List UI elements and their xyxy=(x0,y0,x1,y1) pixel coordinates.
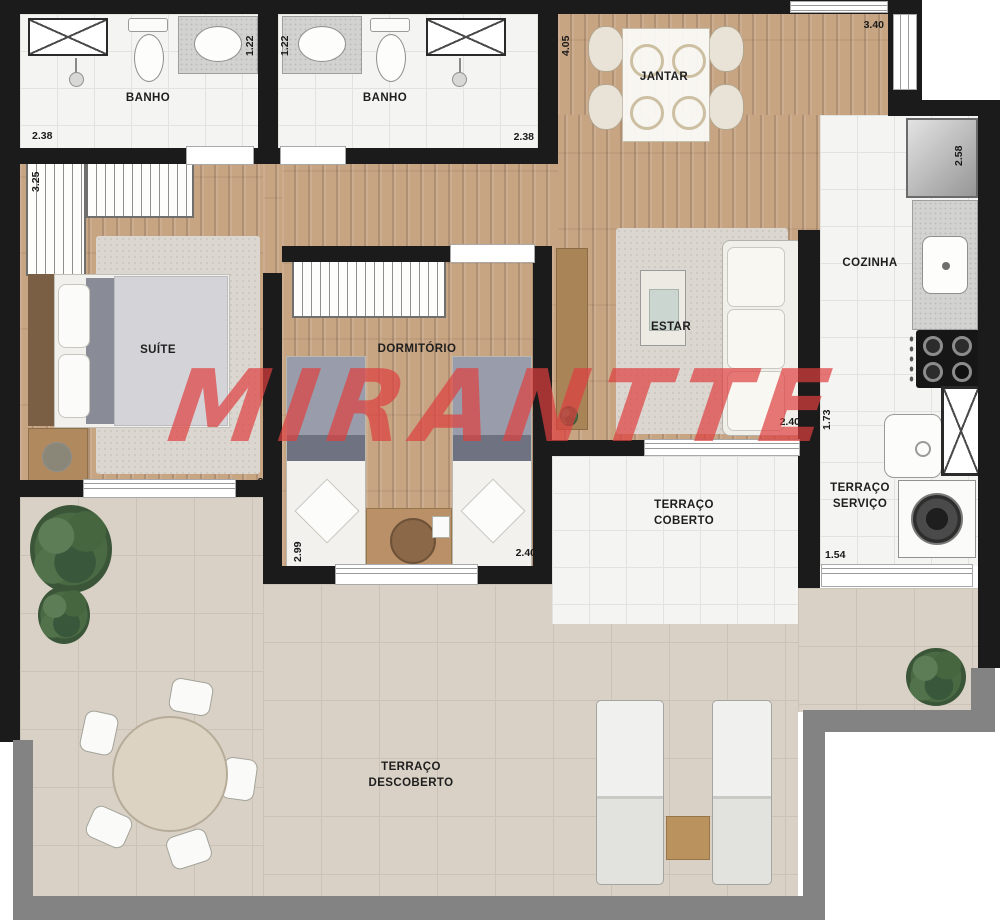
room-label-estar: ESTAR xyxy=(651,320,691,336)
bed-blanket-band xyxy=(287,435,365,461)
room-label-dormitorio: DORMITÓRIO xyxy=(378,342,457,358)
outside-bottom-right xyxy=(825,730,1000,924)
door-dormitorio xyxy=(450,244,535,263)
stove-cooktop-icon xyxy=(916,330,980,388)
sofa-cushion xyxy=(727,371,785,431)
terrace-chair xyxy=(167,677,214,718)
dim-dormitorio-depth: 2.99 xyxy=(292,542,304,562)
terraco-coberto-line1: TERRAÇO xyxy=(654,499,714,511)
wall-estar-servico xyxy=(798,230,820,588)
toilet-tank-icon xyxy=(128,18,168,32)
wall-dormitorio-top xyxy=(282,246,452,262)
wall-estar-bottom xyxy=(552,440,644,456)
room-label-terraco-servico: TERRAÇO SERVIÇO xyxy=(830,481,890,512)
dim-jantar-width: 3.40 xyxy=(864,19,884,31)
dim-cozinha-depth: 2.58 xyxy=(953,146,965,166)
dim-banho2-width: 2.38 xyxy=(514,131,534,143)
wall-left xyxy=(0,0,20,742)
wall-banho-divider xyxy=(258,0,278,150)
door-servico-terrace xyxy=(821,564,973,587)
bed-blanket xyxy=(453,357,531,435)
window-jantar-top xyxy=(790,1,888,13)
terraco-servico-line1: TERRAÇO xyxy=(830,482,890,494)
wall-suite-dormitorio xyxy=(263,273,282,584)
tv-console xyxy=(556,248,588,430)
room-label-banho-1: BANHO xyxy=(126,91,170,107)
small-plant-icon xyxy=(560,406,578,426)
dim-banho1-width: 2.38 xyxy=(32,130,52,142)
burner-icon xyxy=(923,362,943,382)
bench-lamp-icon xyxy=(42,442,72,472)
sofa-cushion xyxy=(727,309,785,369)
room-label-terraco-coberto: TERRAÇO COBERTO xyxy=(654,498,714,529)
suite-closet-top xyxy=(86,158,194,218)
potted-plant-icon xyxy=(906,648,966,706)
large-plant-icon xyxy=(30,505,112,593)
pillow xyxy=(58,354,90,418)
laundry-tank-icon xyxy=(884,414,942,478)
dim-servico-depth: 1.73 xyxy=(821,410,833,430)
bed-throw xyxy=(86,278,114,424)
window-dormitorio-terrace xyxy=(335,564,478,585)
dining-chair xyxy=(708,84,744,130)
dining-chair xyxy=(708,26,744,72)
toilet-tank-icon xyxy=(370,18,410,32)
pillow xyxy=(58,284,90,348)
wall-right xyxy=(978,100,1000,670)
dim-dormitorio-width: 2.40 xyxy=(516,547,536,559)
room-label-cozinha: COZINHA xyxy=(842,256,897,272)
round-plant-icon xyxy=(38,586,90,644)
wall-top xyxy=(0,0,892,14)
terraco-descoberto-line1: TERRAÇO xyxy=(381,761,441,773)
toilet-bowl-icon xyxy=(376,34,406,82)
outside-left-strip xyxy=(0,742,13,924)
stove-knobs-icon xyxy=(908,334,915,384)
room-label-terraco-descoberto: TERRAÇO DESCOBERTO xyxy=(369,760,454,791)
toilet-bowl-icon xyxy=(134,34,164,82)
sofa xyxy=(722,240,804,436)
washer-door-icon xyxy=(911,493,963,545)
sink-basin-icon xyxy=(298,26,346,62)
dining-chair xyxy=(588,26,624,72)
dim-suite-depth: 3.25 xyxy=(30,172,42,192)
burner-icon xyxy=(923,336,943,356)
kitchen-sink-icon xyxy=(922,236,968,294)
duct-shaft-icon xyxy=(941,386,981,476)
tank-drain-icon xyxy=(915,441,931,457)
sun-lounger xyxy=(596,700,664,885)
dim-estar-width: 2.40 xyxy=(780,416,800,428)
floor-plan: BANHO BANHO JANTAR COZINHA SUÍTE DORMITÓ… xyxy=(0,0,1000,924)
round-stool-icon xyxy=(390,518,436,564)
door-banho-2 xyxy=(280,146,346,165)
bed-blanket-band xyxy=(453,435,531,461)
refrigerator xyxy=(906,118,978,198)
window-jantar-right xyxy=(893,14,917,90)
burner-icon xyxy=(952,336,972,356)
door-suite-terrace xyxy=(83,479,236,498)
shower-drain-icon xyxy=(452,72,467,87)
room-label-banho-2: BANHO xyxy=(363,91,407,107)
chair-back-icon xyxy=(630,96,664,130)
terraco-descoberto-line2: DESCOBERTO xyxy=(369,777,454,789)
shower-drain-icon xyxy=(69,72,84,87)
terraco-servico-line2: SERVIÇO xyxy=(833,498,887,510)
floor-hall xyxy=(282,163,558,246)
parapet-step-horizontal xyxy=(803,710,993,732)
door-banho-1 xyxy=(186,146,254,165)
room-label-suite: SUÍTE xyxy=(140,343,176,359)
shower-box-icon xyxy=(28,18,108,56)
parapet-right xyxy=(971,668,995,732)
bed-blanket xyxy=(287,357,365,435)
dormitorio-wardrobe xyxy=(292,256,446,318)
wall-dormitorio-estar xyxy=(533,246,552,584)
washing-machine-icon xyxy=(898,480,976,558)
room-label-jantar: JANTAR xyxy=(640,70,688,86)
dim-suite-width: 2.40 xyxy=(258,476,278,488)
terraco-coberto-line2: COBERTO xyxy=(654,515,714,527)
sink-drain-icon xyxy=(942,262,950,270)
shower-box-icon xyxy=(426,18,506,56)
round-table xyxy=(112,716,228,832)
dim-servico-width: 1.54 xyxy=(825,549,845,561)
floor-suite-entry xyxy=(263,163,282,273)
bed-headboard xyxy=(28,274,54,426)
chair-back-icon xyxy=(672,96,706,130)
sun-lounger xyxy=(712,700,772,885)
table-lamp-icon xyxy=(432,516,450,538)
dining-chair xyxy=(588,84,624,130)
dim-banho1-depth: 1.22 xyxy=(244,36,256,56)
dim-banho2-depth: 1.22 xyxy=(279,36,291,56)
wall-banho2-jantar xyxy=(538,0,558,163)
sink-basin-icon xyxy=(194,26,242,62)
parapet-bottom xyxy=(13,896,825,920)
sliding-door-estar-terrace xyxy=(644,439,800,456)
outside-top-right xyxy=(922,0,1000,100)
sofa-cushion xyxy=(727,247,785,307)
parapet-left xyxy=(13,740,33,918)
side-table xyxy=(666,816,710,860)
burner-icon xyxy=(952,362,972,382)
floor-terraco-coberto xyxy=(552,456,798,624)
dim-jantar-depth: 4.05 xyxy=(560,36,572,56)
parapet-step-vertical xyxy=(803,710,825,920)
